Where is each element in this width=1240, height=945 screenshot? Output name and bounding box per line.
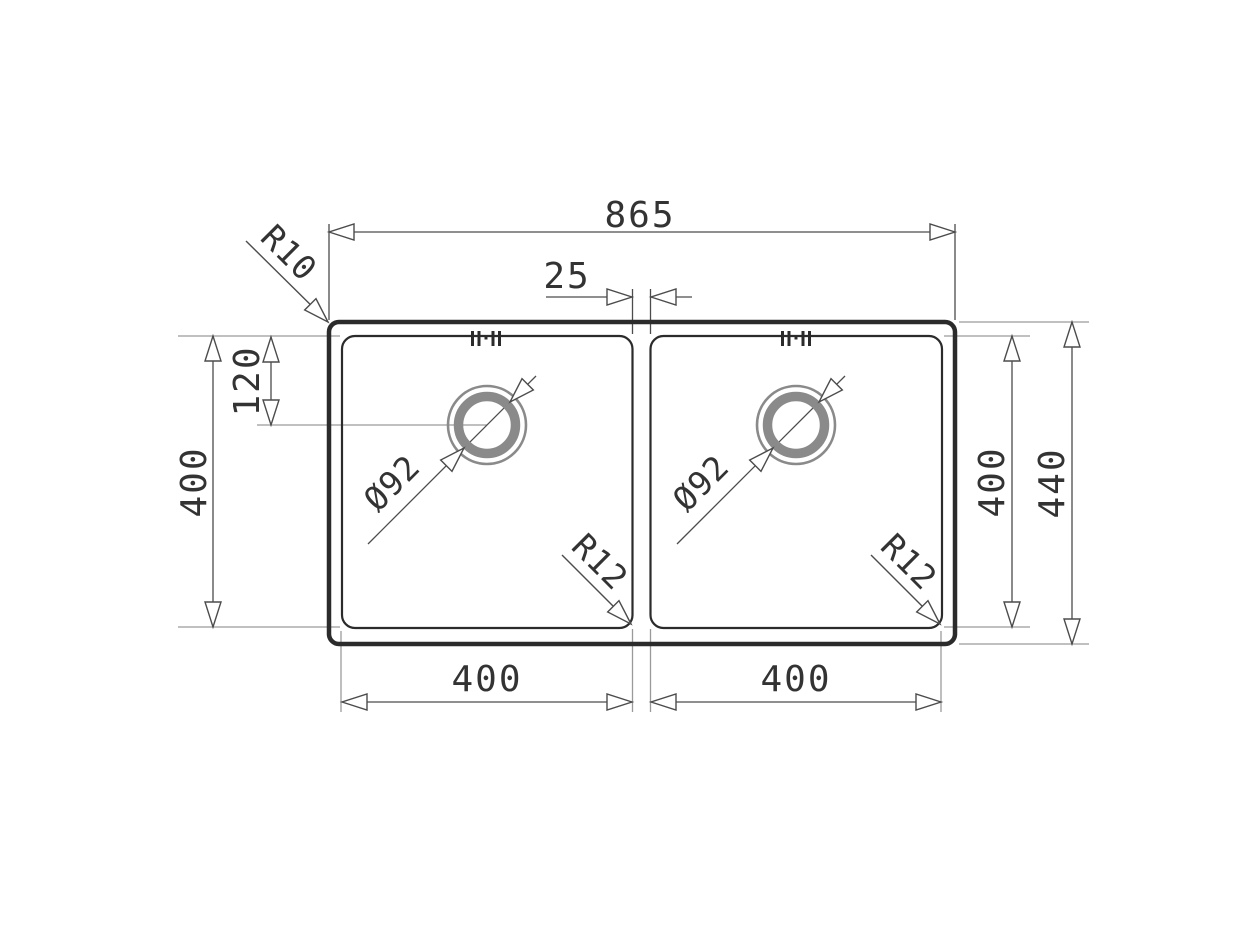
radius-bowl-right-label: R12 (873, 526, 945, 598)
drain-right: Ø92 (665, 376, 845, 544)
dim-865-label: 865 (604, 195, 675, 236)
arrowhead-down-icon (205, 602, 221, 627)
arrowhead-up-icon (1004, 336, 1020, 361)
dimension-divider-width: 25 (543, 256, 692, 305)
radius-callout-bowl-left: R12 (562, 526, 637, 630)
sink-outline (329, 322, 955, 644)
dimension-overall-depth: 440 (1032, 322, 1080, 644)
arrowhead-down-icon (1064, 619, 1080, 644)
dimension-drain-offset: 120 (227, 337, 279, 425)
arrowhead-right-icon (930, 224, 955, 240)
arrowhead-right-icon (916, 694, 941, 710)
dim-25-label: 25 (543, 256, 590, 297)
tap-mark-right (781, 331, 811, 346)
arrowhead-up-icon (205, 336, 221, 361)
arrowhead-down-icon (1004, 602, 1020, 627)
arrowhead-left-icon (651, 289, 676, 305)
dimension-bowl-depth-left: 400 (174, 336, 221, 627)
drain-left-diameter-label: Ø92 (356, 447, 428, 519)
dim-120-label: 120 (227, 345, 268, 416)
dim-440-label: 440 (1032, 447, 1073, 518)
arrowhead-left-icon (342, 694, 367, 710)
sink-technical-drawing-page: 865 25 120 400 400 440 (0, 0, 1240, 945)
dimension-bowl-width-right: 400 (651, 659, 941, 710)
dimension-overall-width: 865 (329, 195, 955, 240)
arrowhead-left-icon (651, 694, 676, 710)
sink-outer-rim (329, 322, 955, 644)
radius-callout-outer: R10 (246, 217, 334, 328)
drain-left: Ø92 (356, 376, 536, 544)
dim-400-right-label: 400 (972, 446, 1013, 517)
dim-400-left-label: 400 (174, 446, 215, 517)
dim-400-bottom-left-label: 400 (451, 659, 522, 700)
dim-400-bottom-right-label: 400 (760, 659, 831, 700)
radius-callout-bowl-right: R12 (871, 526, 946, 630)
arrowhead-right-icon (607, 694, 632, 710)
arrowhead-right-icon (607, 289, 632, 305)
sink-technical-drawing: 865 25 120 400 400 440 (0, 0, 1240, 945)
arrowhead-left-icon (329, 224, 354, 240)
drain-right-diameter-label: Ø92 (665, 447, 737, 519)
tap-mark-left (471, 331, 501, 346)
dimension-bowl-depth-right: 400 (972, 336, 1020, 627)
dimension-bowl-width-left: 400 (342, 659, 632, 710)
radius-bowl-left-label: R12 (564, 526, 636, 598)
radius-outer-label: R10 (253, 217, 325, 289)
arrowhead-up-icon (1064, 322, 1080, 347)
